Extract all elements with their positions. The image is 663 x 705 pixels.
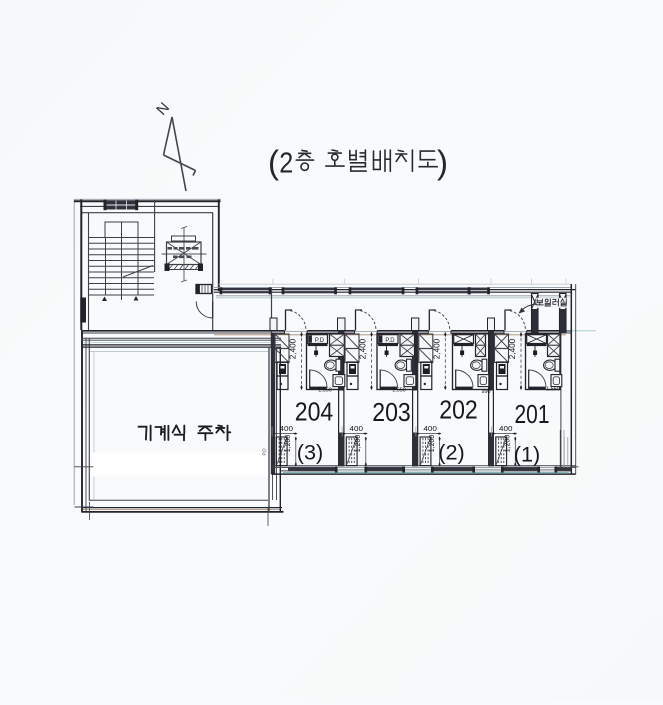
svg-text:P.D: P.D (315, 338, 325, 344)
svg-text:1,200: 1,200 (429, 435, 436, 453)
svg-text:203: 203 (372, 399, 411, 427)
svg-text:1,550: 1,550 (392, 388, 406, 394)
svg-text:(1): (1) (514, 443, 541, 467)
svg-text:400: 400 (499, 426, 513, 433)
svg-text:2: 2 (279, 148, 293, 180)
svg-text:(2): (2) (438, 440, 465, 464)
svg-text:1,550: 1,550 (318, 388, 332, 394)
svg-text:400: 400 (350, 426, 364, 433)
svg-text:400: 400 (423, 426, 437, 433)
svg-text:1,550: 1,550 (546, 387, 560, 393)
svg-text:1,200: 1,200 (355, 435, 362, 453)
svg-text:1,200: 1,200 (285, 435, 292, 453)
svg-text:(3): (3) (297, 440, 324, 464)
svg-text:): ) (437, 144, 448, 181)
svg-text:2,400: 2,400 (289, 338, 298, 359)
svg-text:2,400: 2,400 (432, 338, 441, 359)
svg-text:1,200: 1,200 (505, 435, 512, 453)
svg-text:P.D: P.D (385, 338, 395, 344)
svg-text:202: 202 (439, 397, 478, 425)
svg-text:990: 990 (482, 389, 491, 395)
svg-text:P.D: P.D (262, 448, 267, 456)
svg-text:204: 204 (295, 398, 334, 426)
svg-text:201: 201 (515, 401, 550, 429)
svg-text:400: 400 (280, 426, 294, 433)
svg-text:2,400: 2,400 (508, 338, 517, 359)
svg-text:2,400: 2,400 (359, 338, 368, 359)
svg-text:(: ( (268, 144, 279, 181)
